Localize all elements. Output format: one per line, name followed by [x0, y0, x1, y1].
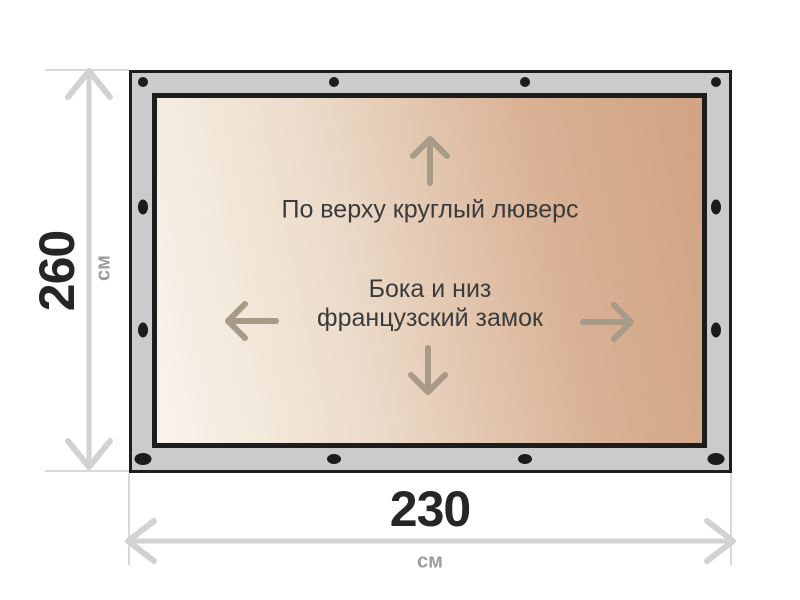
sides-bottom-label: Бока и низ французский замок: [317, 275, 543, 333]
top-edge-label: По верху круглый люверс: [281, 196, 578, 225]
grommet-dot: [329, 77, 339, 87]
width-unit: см: [417, 551, 443, 574]
grommet-dot: [518, 454, 532, 464]
grommet-dot: [520, 77, 530, 87]
grommet-dot: [708, 453, 725, 465]
height-value: 260: [28, 231, 86, 311]
grommet-dot: [138, 77, 148, 87]
sides-bottom-label-line1: Бока и низ: [317, 275, 543, 304]
grommet-dot: [138, 200, 148, 215]
height-unit: см: [93, 255, 116, 281]
grommet-dot: [711, 323, 721, 338]
grommet-dot: [327, 454, 341, 464]
grommet-dot: [711, 200, 721, 215]
right-arrow-icon: [579, 294, 635, 350]
down-arrow-icon: [400, 343, 456, 399]
grommet-dot: [711, 77, 721, 87]
width-value: 230: [390, 480, 470, 538]
left-arrow-icon: [224, 293, 280, 349]
diagram-canvas: 260 см 230 см По верху круглый лювер: [0, 0, 800, 600]
up-arrow-icon: [402, 132, 458, 188]
grommet-dot: [135, 453, 152, 465]
sides-bottom-label-line2: французский замок: [317, 304, 543, 333]
grommet-dot: [138, 323, 148, 338]
